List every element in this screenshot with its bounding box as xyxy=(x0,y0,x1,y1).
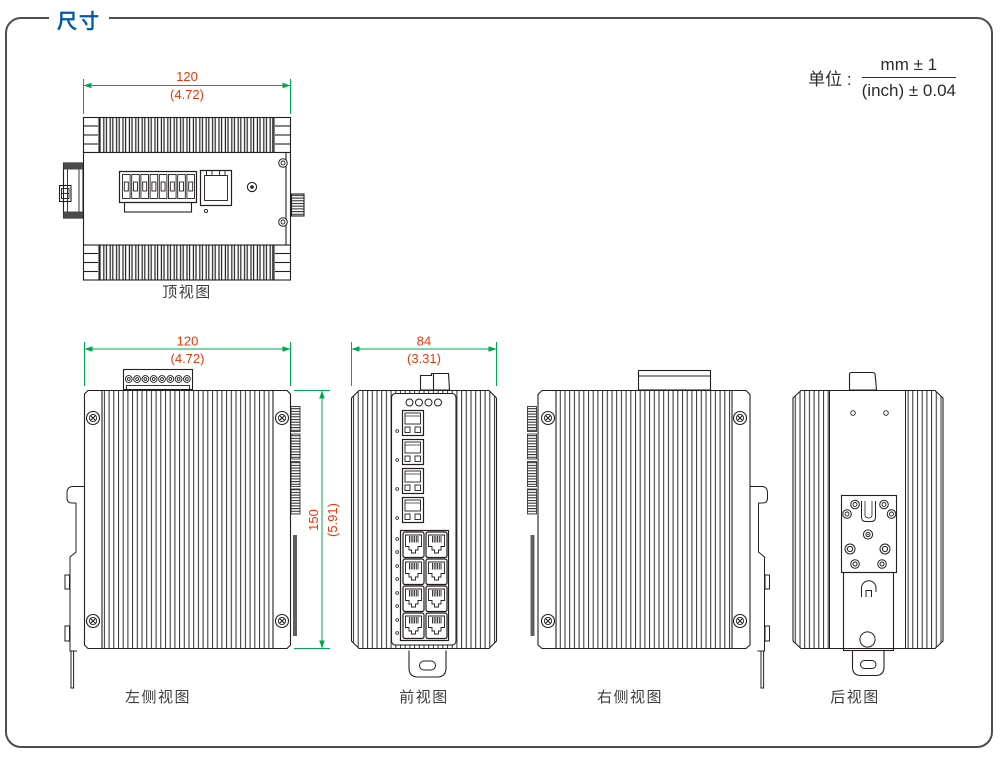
front-width-inch: (3.31) xyxy=(407,351,441,366)
terminal-block-stub-rear xyxy=(850,373,877,391)
din-rail-clip-left xyxy=(65,487,85,689)
heatsink-fins-right xyxy=(556,391,732,649)
rj45-port xyxy=(426,613,447,639)
left-width-mm: 120 xyxy=(177,334,199,349)
left-height-inch: (5.91) xyxy=(325,503,340,537)
left-width-inch: (4.72) xyxy=(171,351,205,366)
unit-note: 单位 : mm ± 1 (inch) ± 0.04 xyxy=(808,54,956,102)
screw-icon xyxy=(279,218,288,227)
screw-icon xyxy=(279,159,288,168)
sfp-port xyxy=(403,469,424,494)
rj45-port xyxy=(426,586,447,612)
screw-icon xyxy=(542,412,555,425)
front-panel-edge-profile-right xyxy=(528,407,537,637)
drawings-canvas: 120 (4.72) xyxy=(0,0,1000,760)
terminal-block-side xyxy=(124,370,193,390)
terminal-block-stub-front xyxy=(421,374,450,391)
view-right-side: 右侧视图 xyxy=(528,371,770,707)
screw-icon xyxy=(734,412,747,425)
label-top-view: 顶视图 xyxy=(162,284,212,301)
sfp-port xyxy=(403,498,424,523)
screw-icon xyxy=(542,615,555,628)
label-front-view: 前视图 xyxy=(399,689,449,706)
label-rear-view: 后视图 xyxy=(830,689,880,706)
rear-center-panel xyxy=(830,391,906,649)
ground-screw-knob-top xyxy=(292,194,305,216)
front-width-mm: 84 xyxy=(417,334,431,349)
left-height-mm: 150 xyxy=(306,509,321,531)
view-front: 84 (3.31) xyxy=(352,334,497,707)
sfp-port xyxy=(403,440,424,465)
rj45-port xyxy=(403,613,424,639)
din-rail-clip-right xyxy=(750,487,770,689)
page-title: 尺寸 xyxy=(49,5,109,34)
rj45-port xyxy=(403,532,424,558)
unit-mm: mm ± 1 xyxy=(862,54,956,78)
screw-icon xyxy=(276,412,289,425)
unit-fraction: mm ± 1 (inch) ± 0.04 xyxy=(862,54,956,102)
screw-icon xyxy=(843,510,852,519)
mounting-tab-rear xyxy=(853,651,885,676)
view-top: 120 (4.72) xyxy=(60,69,305,301)
label-right-side-view: 右侧视图 xyxy=(597,689,663,706)
screw-icon xyxy=(887,510,896,519)
screw-icon xyxy=(87,412,100,425)
din-rail-bracket-top xyxy=(60,163,84,218)
screw-icon xyxy=(734,615,747,628)
view-rear: 后视图 xyxy=(793,373,943,707)
mounting-tab-front xyxy=(409,651,446,678)
screw-icon xyxy=(851,500,860,509)
front-panel-edge-profile-left xyxy=(291,407,300,637)
rj45-port xyxy=(426,559,447,585)
terminal-block-back-right xyxy=(639,371,711,391)
sfp-port xyxy=(403,411,424,436)
top-width-mm: 120 xyxy=(176,69,198,84)
screw-icon xyxy=(276,615,289,628)
rj45-port xyxy=(403,559,424,585)
view-left-side: 120 (4.72) 150 (5.91) xyxy=(65,334,340,707)
page: 尺寸 单位 : mm ± 1 (inch) ± 0.04 xyxy=(0,0,1000,760)
heatsink-fins-top-band xyxy=(84,118,291,153)
top-width-inch: (4.72) xyxy=(170,87,204,102)
unit-inch: (inch) ± 0.04 xyxy=(862,78,956,101)
unit-label: 单位 : xyxy=(808,65,851,90)
label-left-side-view: 左侧视图 xyxy=(125,689,191,706)
heatsink-fins-bottom-band xyxy=(84,245,291,280)
rj45-port xyxy=(426,532,447,558)
heatsink-fins-left xyxy=(102,391,273,649)
screw-icon xyxy=(880,500,889,509)
rj45-port xyxy=(403,586,424,612)
screw-icon xyxy=(87,615,100,628)
